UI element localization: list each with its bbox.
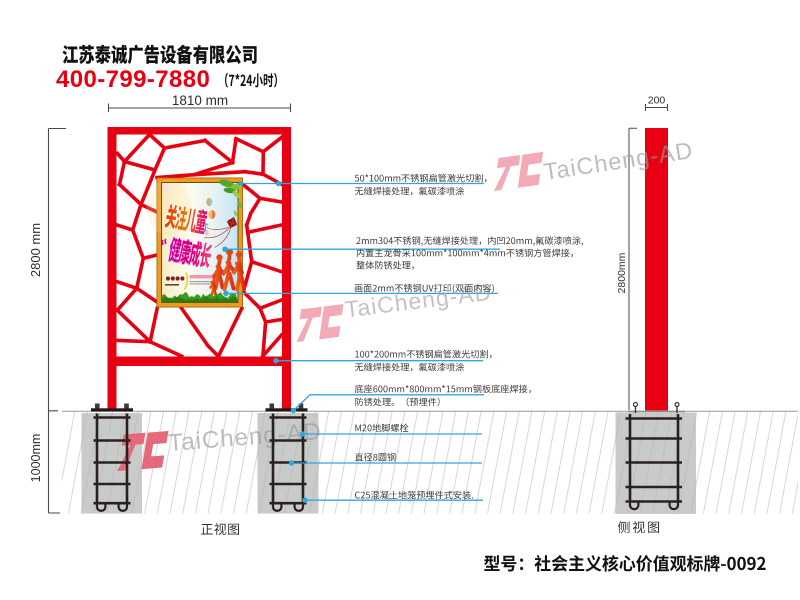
svg-text:2800mm: 2800mm <box>616 252 628 293</box>
svg-text:200: 200 <box>648 95 666 107</box>
svg-text:1810 mm: 1810 mm <box>172 93 228 108</box>
svg-text:1000mm: 1000mm <box>29 434 43 483</box>
svg-text:TaiCheng-AD: TaiCheng-AD <box>343 279 493 323</box>
svg-text:400-799-7880: 400-799-7880 <box>56 66 210 93</box>
svg-text:2800 mm: 2800 mm <box>28 223 43 277</box>
svg-text:TaiCheng-AD: TaiCheng-AD <box>542 137 695 185</box>
